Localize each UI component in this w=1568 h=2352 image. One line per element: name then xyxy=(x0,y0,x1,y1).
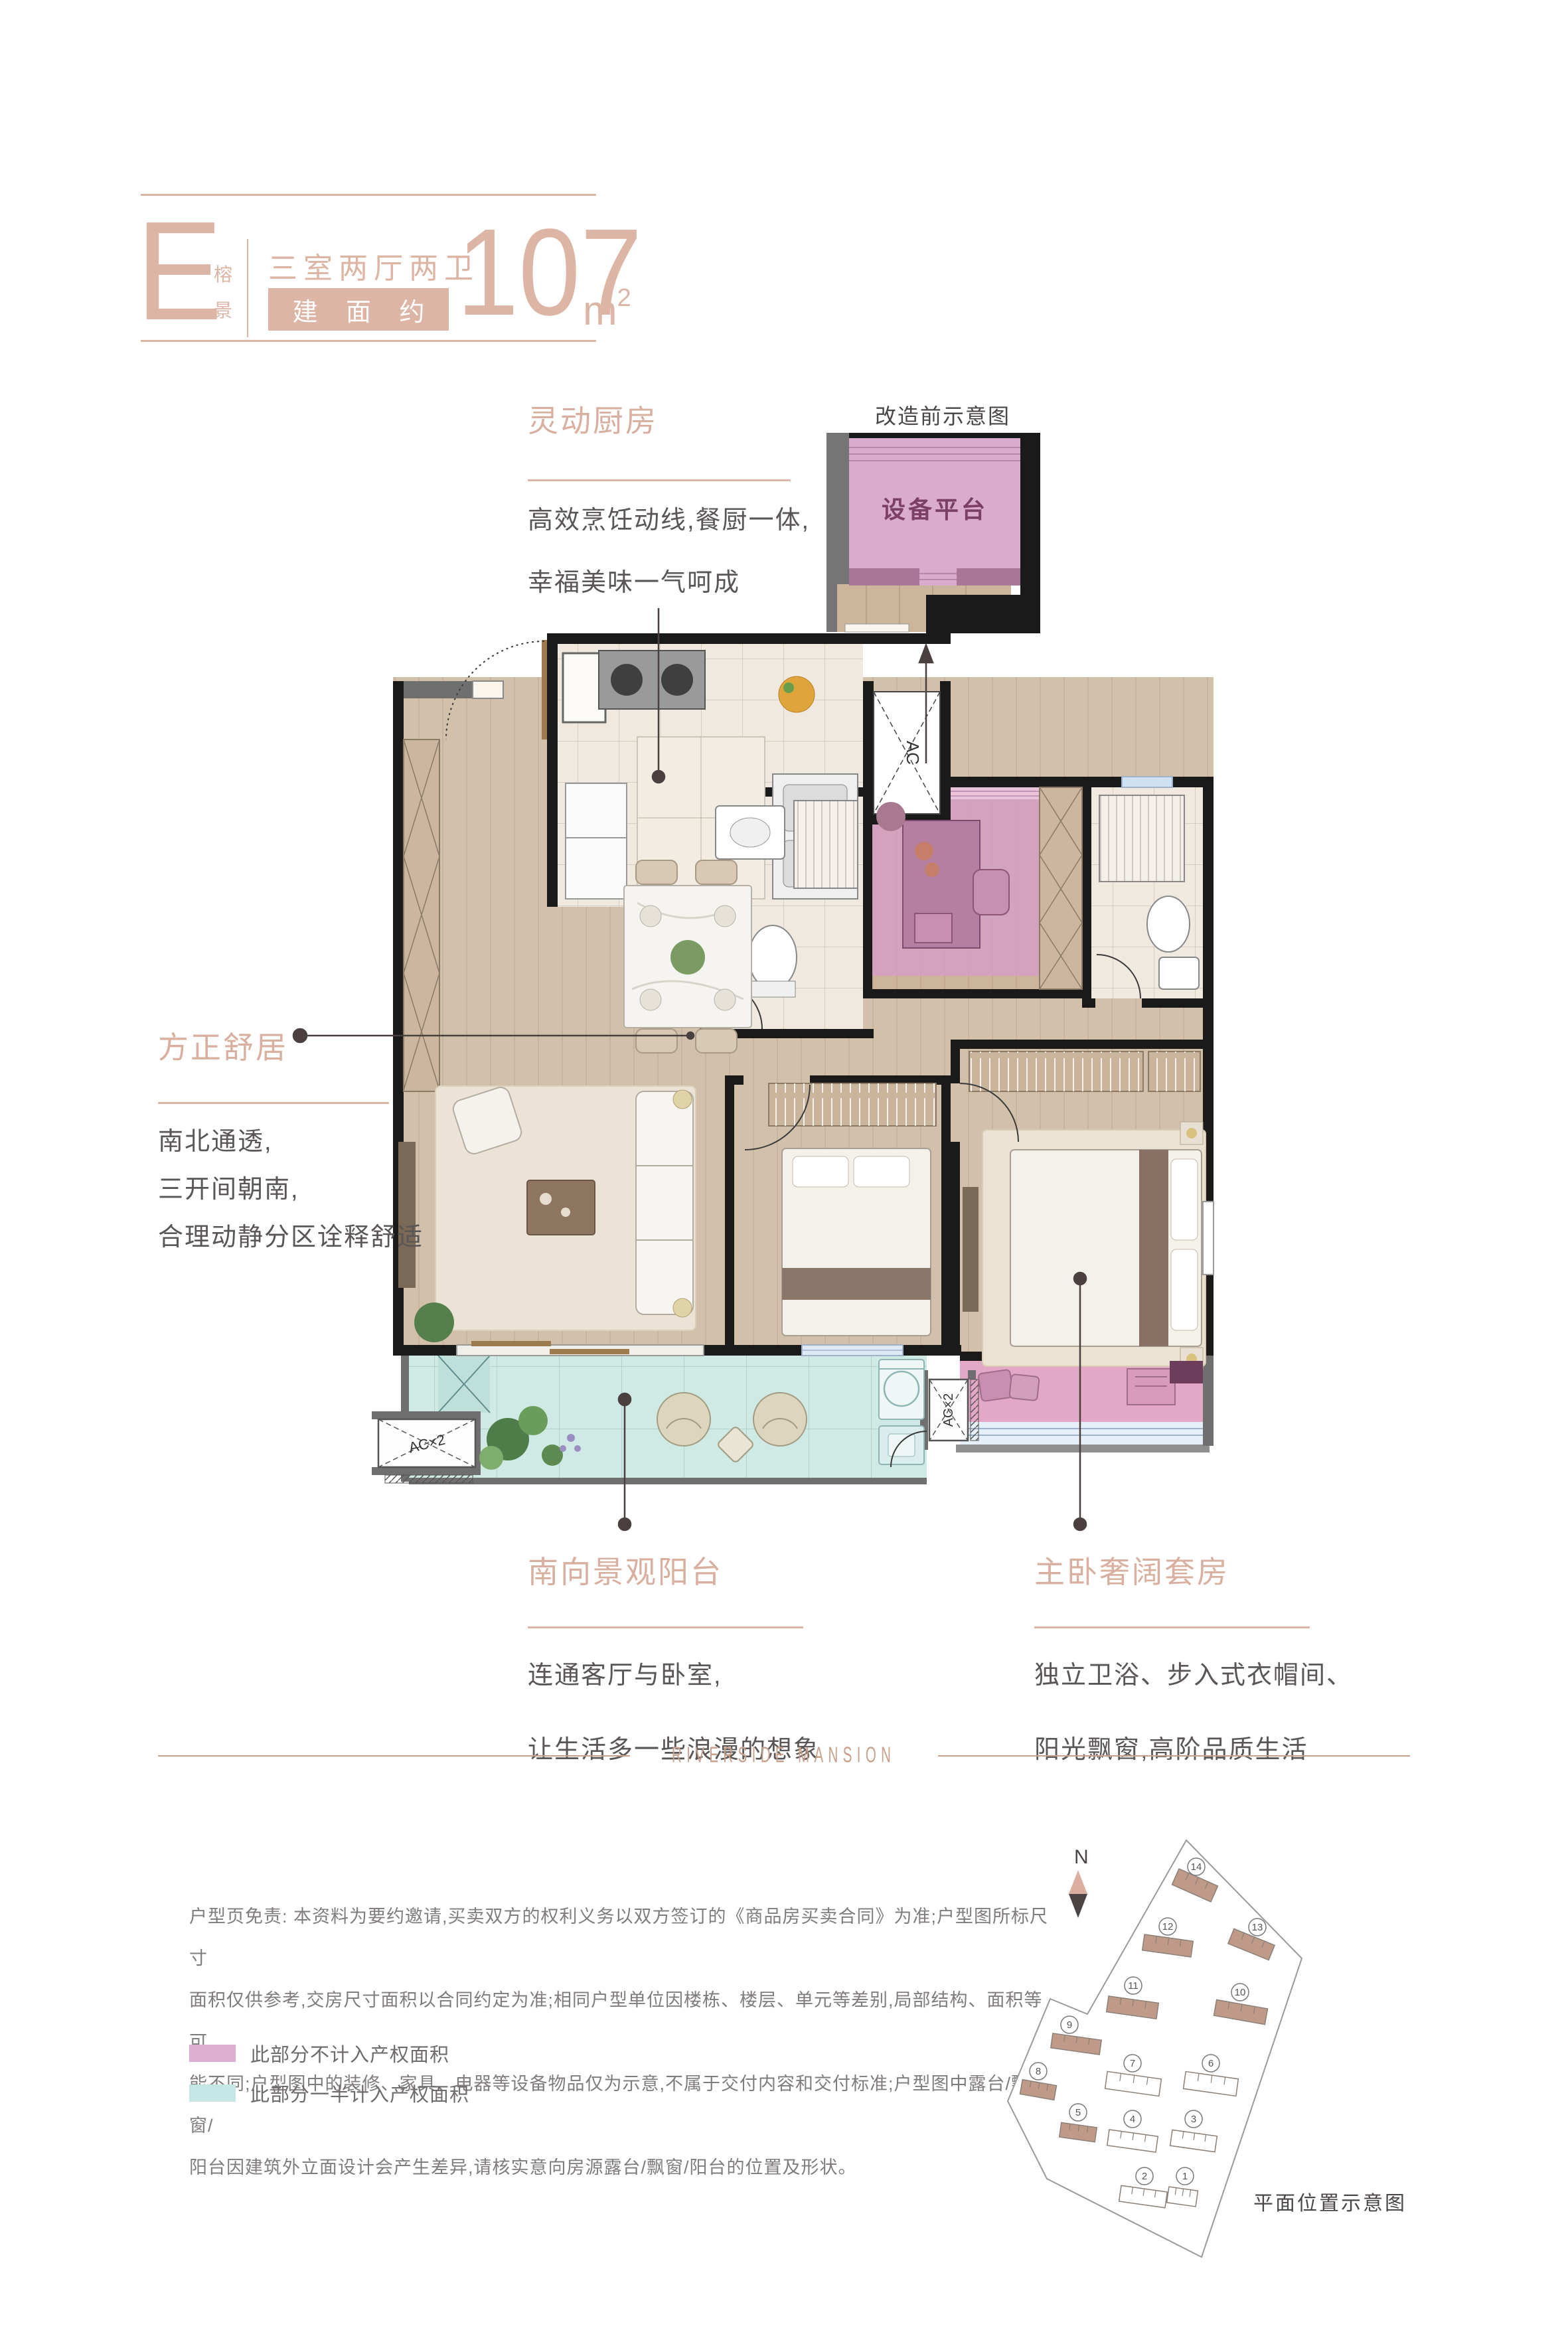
section-title-kitchen: 灵动厨房 xyxy=(528,397,658,441)
rattan-chair xyxy=(753,1393,807,1446)
section-divider xyxy=(528,1626,803,1628)
svg-text:1: 1 xyxy=(1182,2171,1188,2182)
legend-swatch-teal xyxy=(189,2084,236,2102)
svg-text:3: 3 xyxy=(1191,2114,1196,2125)
section-body-line: 三开间朝南, xyxy=(158,1168,299,1205)
plan-name-char: 景 xyxy=(214,296,232,323)
brand-divider: RIVERSIDE MANSION xyxy=(158,1746,1410,1765)
floorplan-marketing-page: E 榕 景 三室两厅两卫 建 面 约 107 m2 灵动厨房 高效烹饪动线,餐厨… xyxy=(0,0,1568,2352)
section-body-line: 幸福美味一气呵成 xyxy=(528,562,740,598)
section-title-livable: 方正舒居 xyxy=(158,1024,288,1067)
plant xyxy=(876,802,905,831)
plan-name-vertical: 榕 景 xyxy=(214,260,232,323)
section-body-line: 独立卫浴、步入式衣帽间、 xyxy=(1034,1654,1353,1691)
bed-runner xyxy=(782,1268,931,1300)
diagram-black-wall xyxy=(1020,433,1040,595)
chair xyxy=(973,870,1009,915)
svg-text:14: 14 xyxy=(1191,1861,1202,1873)
section-body-line: 合理动静分区诠释舒适 xyxy=(158,1216,424,1253)
living-room xyxy=(398,1085,696,1342)
legend-label: 此部分一半计入产权面积 xyxy=(250,2079,469,2107)
divider-line xyxy=(938,1755,1410,1757)
svg-text:12: 12 xyxy=(1162,1921,1174,1932)
svg-text:6: 6 xyxy=(1208,2058,1214,2069)
section-divider xyxy=(1034,1626,1310,1628)
entry-closet xyxy=(404,740,439,1091)
section-divider xyxy=(158,1102,389,1104)
layout-spec: 三室两厅两卫 xyxy=(268,244,445,287)
compass-icon xyxy=(1069,1870,1087,1894)
bed-runner xyxy=(1139,1150,1168,1346)
sofa xyxy=(636,1091,693,1314)
fridge xyxy=(566,783,627,899)
disclaimer-line: 阳台因建筑外立面设计会产生差异,请核实意向房源露台/飘窗/阳台的位置及形状。 xyxy=(189,2147,1052,2189)
section-body-line: 高效烹饪动线,餐厨一体, xyxy=(528,499,810,536)
legend-swatch-pink xyxy=(189,2045,236,2062)
plan-name-char: 榕 xyxy=(214,260,232,287)
disclaimer-line: 户型页免责: 本资料为要约邀请,买卖双方的权利义务以双方签订的《商品房买卖合同》… xyxy=(189,1896,1052,1980)
toilet xyxy=(749,925,797,989)
area-label-box: 建 面 约 xyxy=(268,288,449,331)
svg-text:4: 4 xyxy=(1130,2114,1135,2125)
before-diagram-caption: 改造前示意图 xyxy=(826,400,1059,430)
dresser xyxy=(963,1187,979,1312)
plant xyxy=(414,1302,454,1342)
basin xyxy=(1159,957,1199,989)
header-divider-line xyxy=(247,239,248,337)
dining-area xyxy=(624,860,751,1053)
svg-text:11: 11 xyxy=(1128,1980,1138,1992)
ac-platform-right: AC×2 xyxy=(929,1379,979,1441)
svg-text:13: 13 xyxy=(1252,1922,1263,1933)
section-title-balcony: 南向景观阳台 xyxy=(528,1548,723,1592)
fruit-plate xyxy=(779,676,815,712)
rattan-chair xyxy=(657,1393,710,1446)
bathroom-window xyxy=(1122,777,1172,787)
plan-letter: E xyxy=(136,200,222,341)
toilet xyxy=(1147,896,1190,952)
svg-text:5: 5 xyxy=(1075,2107,1081,2118)
brand-text: RIVERSIDE MANSION xyxy=(658,1743,910,1768)
site-plan: N 1234567891011121314 平面位置示意图 xyxy=(996,1816,1421,2274)
ac-right-label: AC×2 xyxy=(941,1393,956,1427)
table-plant xyxy=(670,940,705,975)
entry-sill xyxy=(473,681,503,698)
site-plan-caption: 平面位置示意图 xyxy=(1253,2193,1407,2215)
ac-shaft-label: AC xyxy=(903,741,923,765)
coffee-table xyxy=(527,1180,595,1235)
section-divider xyxy=(528,479,791,481)
divider-line xyxy=(158,1755,630,1757)
equipment-platform-label: 设备平台 xyxy=(882,496,988,523)
area-unit: m2 xyxy=(583,284,631,335)
section-body-line: 连通客厅与卧室, xyxy=(528,1654,722,1691)
svg-text:8: 8 xyxy=(1036,2066,1041,2077)
svg-text:9: 9 xyxy=(1067,2019,1072,2031)
section-title-master: 主卧奢阔套房 xyxy=(1034,1548,1229,1592)
section-body-line: 南北通透, xyxy=(158,1121,273,1157)
svg-text:2: 2 xyxy=(1142,2171,1147,2182)
legend-item-pink: 此部分不计入产权面积 xyxy=(189,2039,449,2067)
tv-cabinet xyxy=(398,1142,416,1288)
before-renovation-diagram: 设备平台 xyxy=(826,433,1059,635)
ac-shaft: AC xyxy=(874,692,940,814)
legend-item-teal: 此部分一半计入产权面积 xyxy=(189,2079,469,2107)
floor-plan: AC xyxy=(372,617,1221,1507)
legend-label: 此部分不计入产权面积 xyxy=(250,2039,449,2067)
svg-text:10: 10 xyxy=(1235,1987,1246,1998)
svg-text:7: 7 xyxy=(1130,2058,1135,2069)
north-label: N xyxy=(1074,1846,1089,1868)
